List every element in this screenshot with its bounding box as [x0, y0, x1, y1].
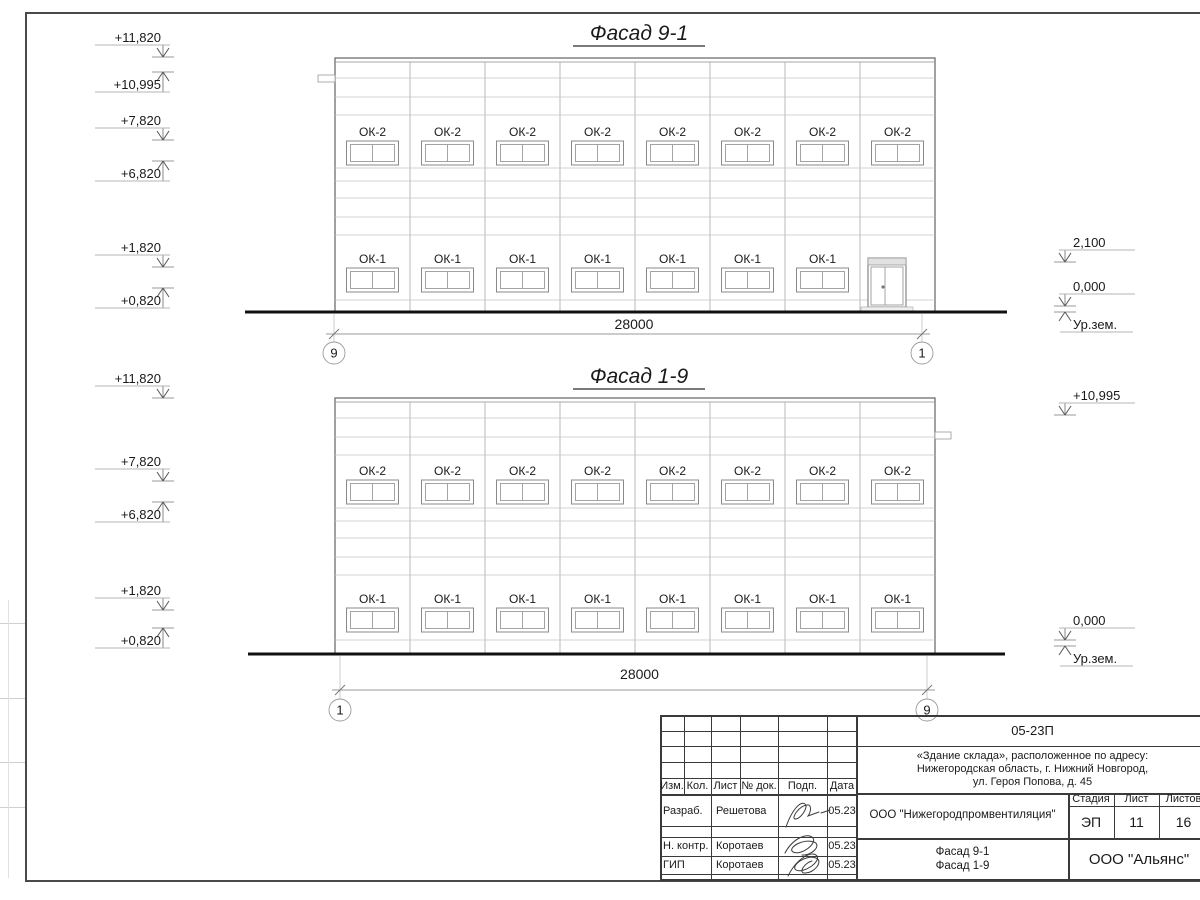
dimension: 2800019 [329, 656, 938, 721]
elevation-label: +11,820 [115, 30, 161, 45]
window-label: ОК-1 [359, 252, 386, 266]
door [861, 258, 913, 311]
tb-drawing-title: Фасад 9-1 Фасад 1-9 [857, 838, 1068, 880]
tb-stage-value: ЭП [1068, 806, 1114, 838]
facade-title: Фасад 9-1 [590, 22, 688, 45]
axis-label: 1 [336, 703, 343, 718]
elevation-label: +7,820 [121, 113, 161, 128]
window-label: ОК-1 [659, 252, 686, 266]
tb-name: Решетова [716, 796, 778, 826]
elevation-label: +0,820 [121, 293, 161, 308]
window-label: ОК-2 [359, 125, 386, 139]
tb-col-izm: Изм. [660, 778, 684, 794]
dimension-label: 28000 [620, 666, 659, 682]
window-label: ОК-2 [434, 125, 461, 139]
elevation-label: +1,820 [121, 583, 161, 598]
elevation-mark: Ур.зем. [1054, 312, 1133, 332]
tb-rule [660, 731, 857, 732]
window-label: ОК-2 [884, 125, 911, 139]
elevation-label: +0,820 [121, 633, 161, 648]
elevation-label: 0,000 [1073, 279, 1106, 294]
axis-bubble: 1 [329, 699, 351, 721]
tb-project-line: Нижегородская область, г. Нижний Новгоро… [917, 763, 1148, 776]
window-label: ОК-1 [434, 592, 461, 606]
elevation-label: +11,820 [115, 371, 161, 386]
elevation-mark: +0,820 [95, 288, 174, 308]
elevation-mark: 0,000 [1054, 613, 1135, 640]
elevation-label: Ур.зем. [1073, 651, 1117, 666]
facade: Фасад 9-1ОК-2ОК-2ОК-2ОК-2ОК-2ОК-2ОК-2ОК-… [95, 22, 1135, 364]
elevation-mark: +6,820 [95, 161, 174, 181]
window-label: ОК-1 [584, 592, 611, 606]
window-label: ОК-1 [884, 592, 911, 606]
axis-label: 9 [330, 346, 337, 361]
elevation-label: 2,100 [1073, 235, 1106, 250]
elevation-label: Ур.зем. [1073, 317, 1117, 332]
elevation-mark: 2,100 [1054, 235, 1135, 262]
tb-role: Н. контр. [663, 837, 711, 856]
elevation-label: +10,995 [1073, 388, 1120, 403]
elevation-mark: +7,820 [95, 454, 174, 481]
elevation-label: +1,820 [121, 240, 161, 255]
facade: Фасад 1-9ОК-2ОК-2ОК-2ОК-2ОК-2ОК-2ОК-2ОК-… [95, 365, 1135, 721]
tb-rule [660, 874, 857, 875]
dimension-label: 28000 [615, 316, 654, 332]
window-label: ОК-2 [584, 125, 611, 139]
elevation-mark: 0,000 [1054, 279, 1135, 306]
tb-role: Разраб. [663, 796, 711, 826]
tb-col-ndok: № док. [740, 778, 778, 794]
window-label: ОК-2 [809, 464, 836, 478]
tb-rule [660, 746, 857, 747]
window-label: ОК-1 [509, 592, 536, 606]
elevation-label: +10,995 [114, 77, 161, 92]
tb-sheets-label: Листов [1159, 793, 1200, 806]
elevation-mark: +10,995 [95, 72, 174, 92]
elevation-mark: +11,820 [95, 30, 174, 57]
tb-name: Коротаев [716, 856, 778, 874]
elevation-label: +6,820 [121, 507, 161, 522]
window-label: ОК-1 [659, 592, 686, 606]
elevation-mark: +6,820 [95, 502, 174, 522]
tb-company: ООО "Альянс" [1070, 838, 1200, 880]
tb-col-data: Дата [827, 778, 857, 794]
elevation-mark: +1,820 [95, 240, 174, 267]
tb-doc-number: 05-23П [857, 715, 1200, 746]
tb-drawing-title-line: Фасад 1-9 [936, 859, 990, 873]
tb-sheets-value: 16 [1159, 806, 1200, 838]
window-label: ОК-2 [509, 464, 536, 478]
tb-col-podp: Подп. [778, 778, 827, 794]
window-label: ОК-1 [734, 252, 761, 266]
tb-role: ГИП [663, 856, 711, 874]
elevation-mark: +1,820 [95, 583, 174, 610]
window-label: ОК-1 [434, 252, 461, 266]
tb-project-line: «Здание склада», расположенное по адресу… [917, 750, 1148, 763]
tb-name: Коротаев [716, 837, 778, 856]
tb-col-list: Лист [711, 778, 740, 794]
window-label: ОК-1 [809, 592, 836, 606]
title-block: Изм. Кол. Лист № док. Подп. Дата Разраб.… [660, 715, 1200, 881]
tb-date: 05.23 [827, 796, 857, 826]
facade-title: Фасад 1-9 [590, 365, 689, 388]
window-label: ОК-2 [734, 464, 761, 478]
window-label: ОК-2 [434, 464, 461, 478]
window-label: ОК-1 [584, 252, 611, 266]
window-label: ОК-1 [809, 252, 836, 266]
tb-project: «Здание склада», расположенное по адресу… [857, 746, 1200, 793]
window-label: ОК-2 [884, 464, 911, 478]
tb-rule [660, 762, 857, 763]
window-label: ОК-2 [734, 125, 761, 139]
window-label: ОК-1 [734, 592, 761, 606]
elevation-label: +6,820 [121, 166, 161, 181]
window-label: ОК-2 [659, 125, 686, 139]
tb-date: 05.23 [827, 856, 857, 874]
tb-stage-label: Стадия [1068, 793, 1114, 806]
tb-project-line: ул. Героя Попова, д. 45 [973, 776, 1092, 789]
tb-date: 05.23 [827, 837, 857, 856]
elevation-mark: +0,820 [95, 628, 174, 648]
elevation-label: 0,000 [1073, 613, 1106, 628]
elevation-label: +7,820 [121, 454, 161, 469]
tb-rule [660, 826, 857, 827]
window-label: ОК-1 [359, 592, 386, 606]
tb-col-kol: Кол. [684, 778, 711, 794]
elevation-mark: +7,820 [95, 113, 174, 140]
tb-drawing-title-line: Фасад 9-1 [936, 845, 990, 859]
axis-bubble: 9 [323, 342, 345, 364]
dimension: 2800091 [323, 314, 933, 364]
elevation-mark: +10,995 [1054, 388, 1135, 415]
window-label: ОК-2 [809, 125, 836, 139]
window-label: ОК-2 [359, 464, 386, 478]
window-label: ОК-2 [659, 464, 686, 478]
axis-label: 1 [918, 346, 925, 361]
window-label: ОК-1 [509, 252, 536, 266]
elevation-mark: Ур.зем. [1054, 646, 1133, 666]
axis-bubble: 1 [911, 342, 933, 364]
window-label: ОК-2 [584, 464, 611, 478]
tb-org: ООО "Нижегородпромвентиляция" [857, 793, 1068, 838]
window-label: ОК-2 [509, 125, 536, 139]
elevation-mark: +11,820 [95, 371, 174, 398]
tb-sheet-label: Лист [1114, 793, 1159, 806]
tb-sheet-value: 11 [1114, 806, 1159, 838]
